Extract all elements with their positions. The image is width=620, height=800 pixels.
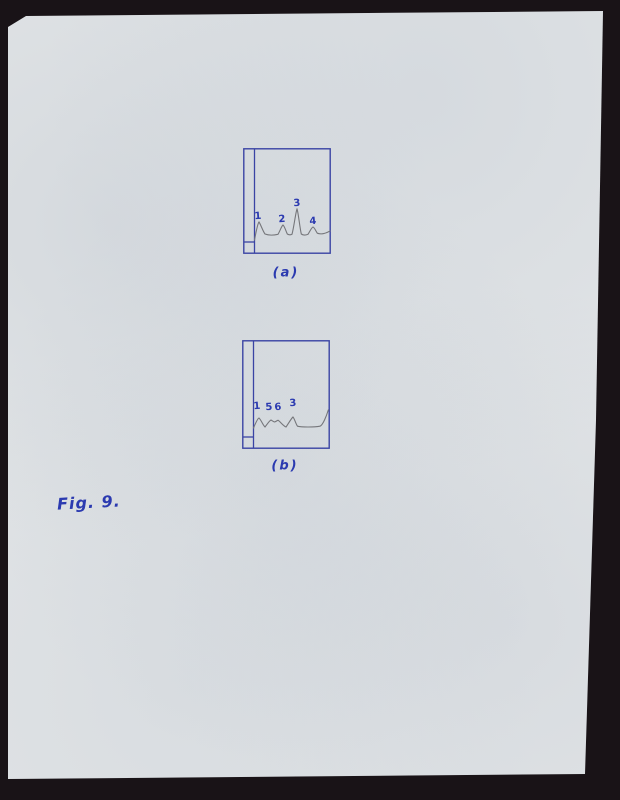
figure-a-box	[244, 149, 330, 253]
peak-label: 1	[253, 402, 261, 412]
figure-b-trace	[254, 410, 329, 428]
figure-a-drawing	[243, 148, 331, 254]
figure-b: 1 5 6 3	[242, 340, 330, 449]
peak-label: 3	[293, 199, 301, 209]
figure-b-drawing	[242, 340, 330, 449]
peak-label: 5	[265, 403, 273, 413]
figure-number-label: Fig. 9.	[57, 491, 122, 513]
peak-label: 1	[254, 212, 262, 222]
peak-label: 3	[289, 399, 297, 409]
peak-label: 4	[309, 217, 317, 227]
figure-b-box	[243, 341, 329, 448]
paper-sheet: 1 2 3 4 (a) 1 5 6 3 (b) Fig. 9.	[0, 0, 620, 800]
figure-a-trace	[255, 209, 331, 240]
figure-a: 1 2 3 4	[243, 148, 331, 254]
peak-label: 2	[278, 215, 286, 225]
scanned-page: { "document": { "figure_label": "Fig. 9.…	[0, 0, 620, 800]
peak-label: 6	[274, 403, 282, 413]
figure-a-caption: (a)	[273, 266, 300, 281]
figure-b-caption: (b)	[271, 459, 298, 474]
